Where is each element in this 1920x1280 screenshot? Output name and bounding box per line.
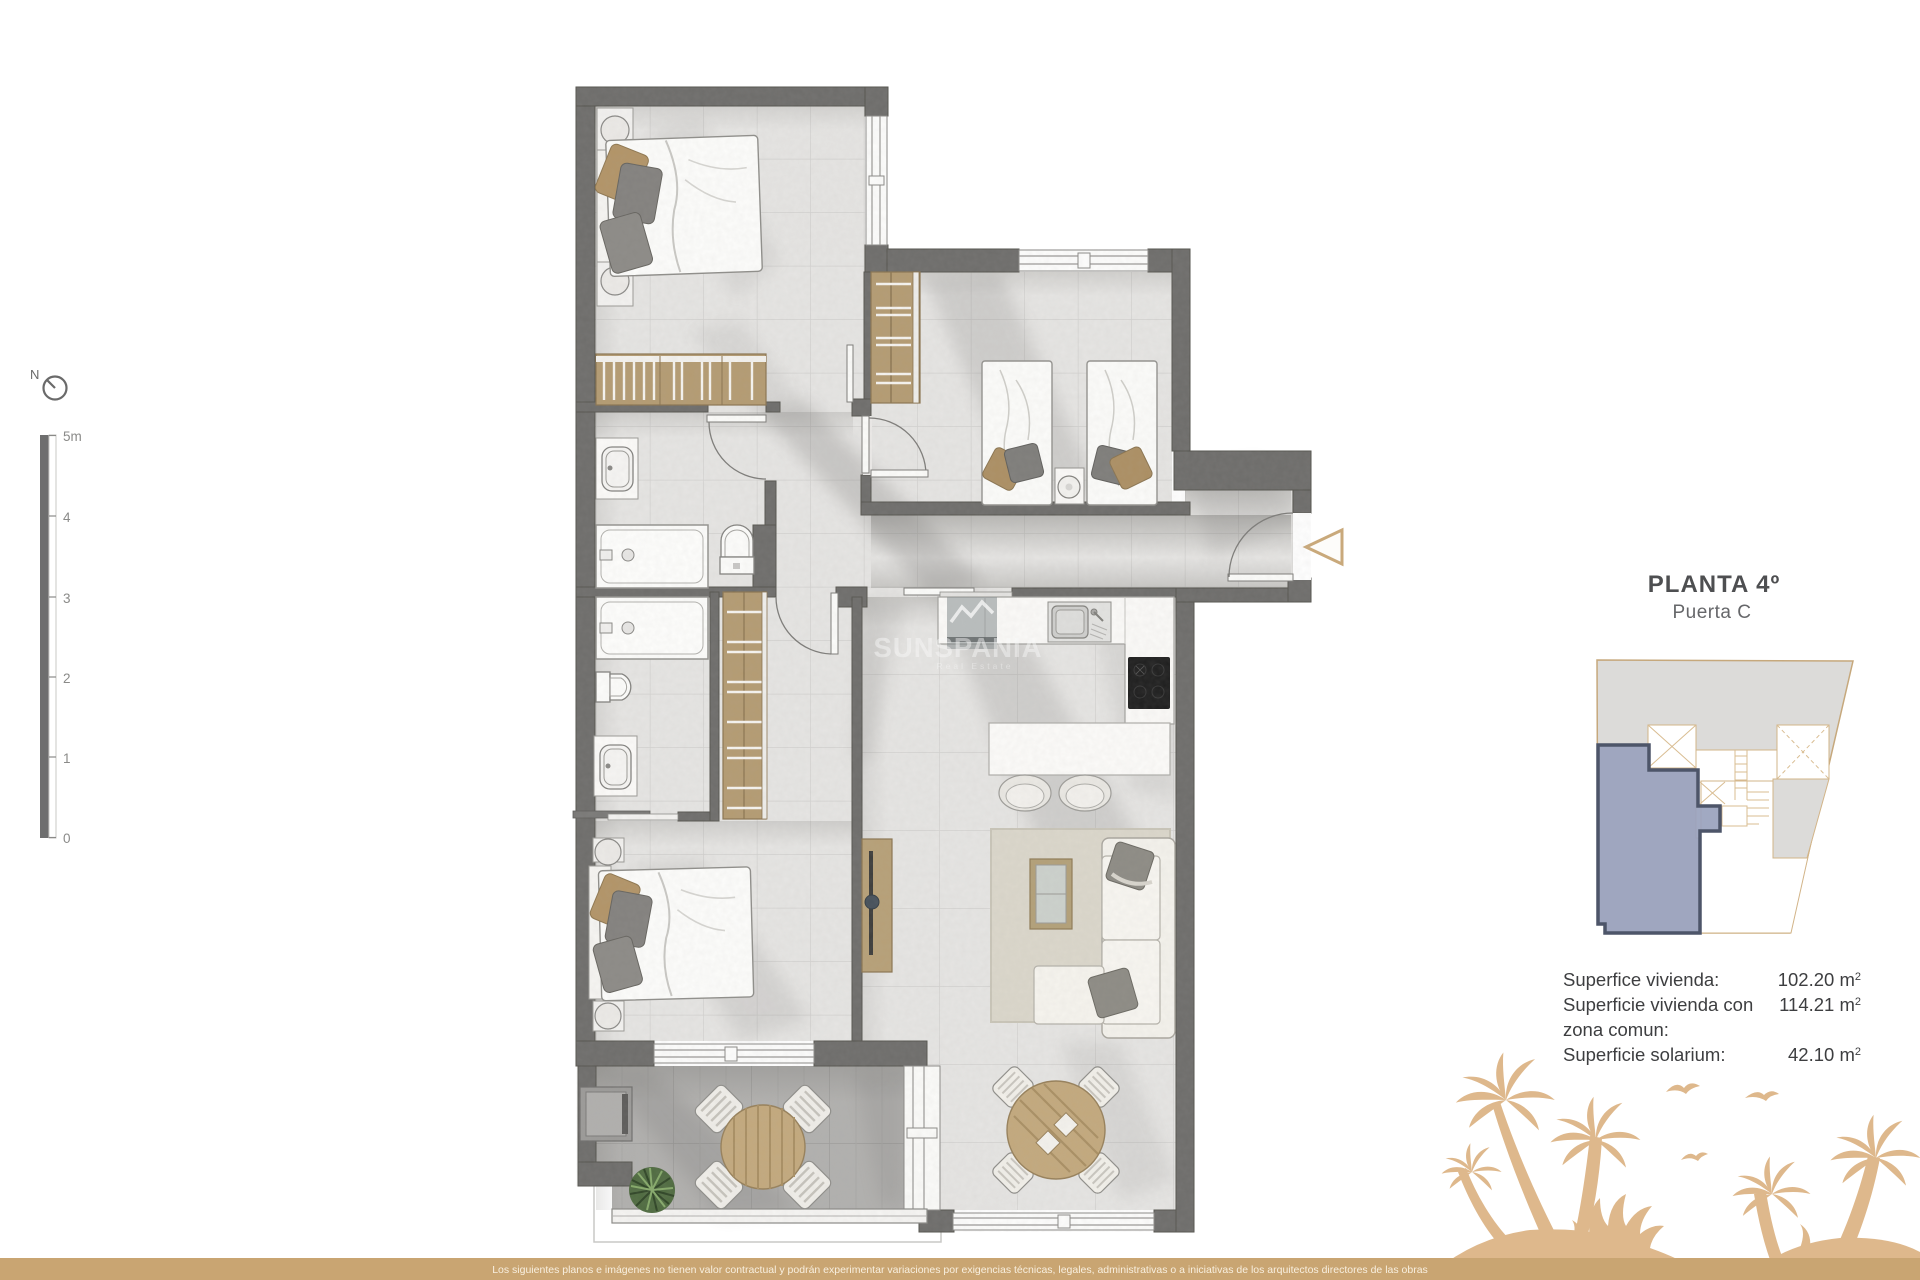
svg-text:1: 1 bbox=[63, 751, 71, 766]
svg-text:3: 3 bbox=[63, 591, 71, 606]
svg-text:N: N bbox=[30, 367, 39, 382]
svg-text:Superfice vivienda:: Superfice vivienda: bbox=[1563, 969, 1719, 990]
svg-text:PLANTA 4º: PLANTA 4º bbox=[1648, 571, 1780, 598]
svg-text:0: 0 bbox=[63, 831, 71, 846]
svg-text:4: 4 bbox=[63, 510, 71, 525]
svg-text:Superficie vivienda con: Superficie vivienda con bbox=[1563, 994, 1753, 1015]
svg-text:102.20 m2: 102.20 m2 bbox=[1778, 969, 1861, 990]
svg-text:5m: 5m bbox=[63, 429, 82, 444]
svg-text:Superficie solarium:: Superficie solarium: bbox=[1563, 1044, 1725, 1065]
svg-text:2: 2 bbox=[63, 671, 71, 686]
svg-text:zona comun:: zona comun: bbox=[1563, 1019, 1669, 1040]
svg-text:Puerta C: Puerta C bbox=[1673, 602, 1752, 623]
svg-text:42.10 m2: 42.10 m2 bbox=[1788, 1044, 1861, 1065]
svg-text:Los siguientes planos e imágen: Los siguientes planos e imágenes no tien… bbox=[492, 1264, 1428, 1276]
svg-text:114.21 m2: 114.21 m2 bbox=[1779, 994, 1861, 1015]
